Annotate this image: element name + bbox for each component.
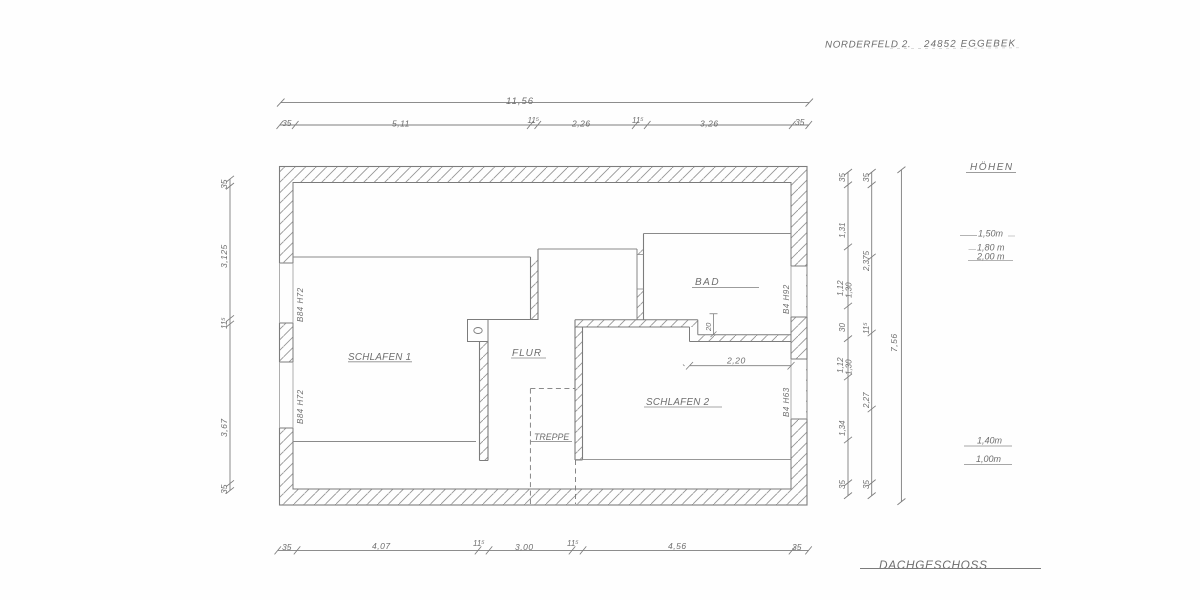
svg-text:2,375: 2,375 (862, 250, 871, 272)
svg-text:2,00 m: 2,00 m (976, 252, 1005, 262)
svg-text:35: 35 (795, 117, 805, 127)
svg-text:35: 35 (838, 173, 847, 182)
svg-text:B84 H72: B84 H72 (296, 389, 305, 424)
svg-text:11,56: 11,56 (506, 96, 534, 107)
svg-text:4,56: 4,56 (668, 541, 687, 551)
svg-text:1,50m: 1,50m (978, 229, 1004, 239)
svg-text:1,31: 1,31 (838, 222, 847, 238)
svg-text:SCHLAFEN 1: SCHLAFEN 1 (348, 352, 411, 363)
svg-text:BAD: BAD (695, 277, 720, 288)
svg-text:35: 35 (862, 480, 871, 489)
svg-text:HÖHEN: HÖHEN (970, 161, 1014, 173)
svg-text:B4 H63: B4 H63 (782, 387, 791, 417)
svg-text:1,30: 1,30 (845, 359, 854, 375)
svg-text:3,26: 3,26 (700, 119, 719, 129)
svg-text:5,11: 5,11 (392, 119, 410, 129)
svg-text:B84 H72: B84 H72 (296, 287, 305, 322)
svg-text:35: 35 (862, 173, 871, 182)
svg-text:35: 35 (282, 542, 292, 552)
svg-text:SCHLAFEN 2: SCHLAFEN 2 (646, 397, 710, 408)
svg-text:35: 35 (282, 118, 292, 128)
svg-text:7,56: 7,56 (889, 333, 899, 352)
svg-text:DACHGESCHOSS: DACHGESCHOSS (879, 558, 988, 572)
svg-text:11⁵: 11⁵ (567, 539, 579, 548)
svg-text:3,00: 3,00 (515, 542, 534, 552)
svg-text:3,125: 3,125 (219, 244, 229, 268)
svg-text:35: 35 (219, 484, 229, 494)
svg-text:20: 20 (704, 322, 713, 332)
svg-text:4,07: 4,07 (372, 541, 391, 551)
svg-text:2,27: 2,27 (862, 392, 871, 409)
svg-text:30: 30 (838, 323, 847, 332)
svg-text:2,20: 2,20 (726, 356, 746, 366)
svg-text:1,34: 1,34 (838, 420, 847, 436)
svg-text:11⁵: 11⁵ (220, 317, 229, 329)
svg-text:1,40m: 1,40m (977, 436, 1003, 446)
svg-text:3,67: 3,67 (219, 418, 229, 437)
svg-text:35: 35 (219, 179, 229, 189)
svg-text:35: 35 (838, 480, 847, 489)
svg-text:11⁵: 11⁵ (473, 539, 485, 548)
svg-text:FLUR: FLUR (512, 348, 542, 359)
svg-text:B4 H92: B4 H92 (782, 284, 791, 314)
svg-text:11⁵: 11⁵ (862, 322, 871, 334)
svg-text:35: 35 (792, 542, 802, 552)
svg-text:1,30: 1,30 (845, 282, 854, 298)
svg-text:TREPPE: TREPPE (534, 432, 569, 442)
svg-text:2,26: 2,26 (571, 119, 591, 129)
svg-text:11⁵: 11⁵ (528, 116, 540, 125)
svg-text:11⁵: 11⁵ (632, 116, 644, 125)
svg-text:1,00m: 1,00m (976, 454, 1002, 464)
